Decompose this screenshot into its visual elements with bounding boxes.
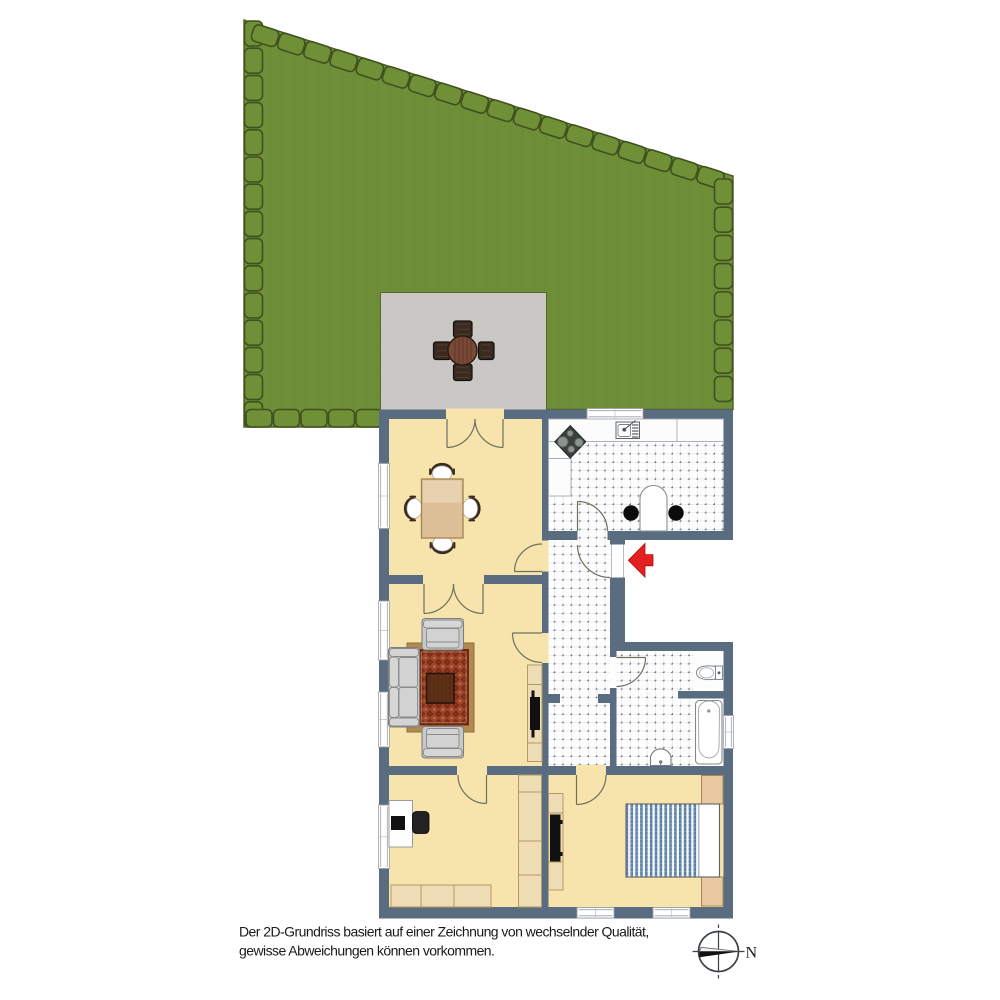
svg-text:Der 2D-Grundriss basiert auf e: Der 2D-Grundriss basiert auf einer Zeich… — [239, 924, 649, 940]
svg-text:gewisse Abweichungen können vo: gewisse Abweichungen können vorkommen. — [239, 943, 494, 959]
svg-text:N: N — [746, 945, 758, 962]
